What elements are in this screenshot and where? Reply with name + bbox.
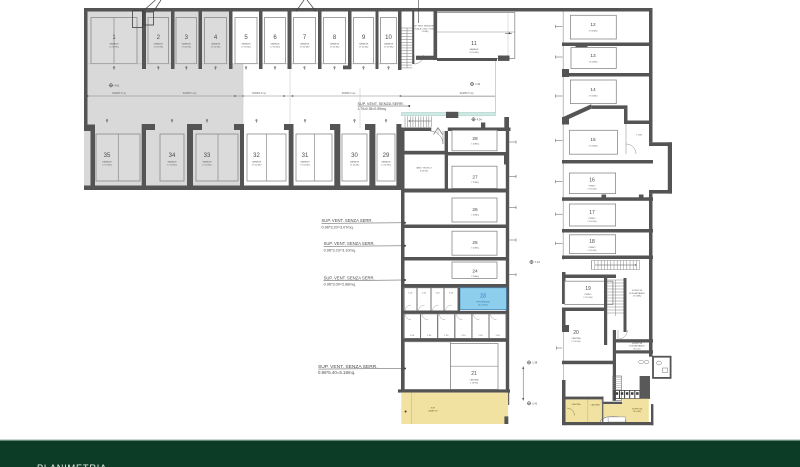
svg-text:17.50MQ: 17.50MQ [589,146,598,148]
svg-text:17.50 MQ: 17.50 MQ [181,47,191,49]
svg-text:1.41: 1.41 [532,402,538,406]
svg-text:33: 33 [204,153,211,159]
svg-text:26: 26 [472,207,478,213]
svg-text:72.50 MQ: 72.50 MQ [469,52,479,54]
svg-text:10: 10 [385,35,392,41]
svg-text:SUP. VENT. SENZA SERR.: SUP. VENT. SENZA SERR. [324,241,375,246]
svg-text:17.50MQ: 17.50MQ [589,96,598,98]
svg-text:GARAGE: GARAGE [102,161,112,164]
svg-text:RAMPA 5 mq: RAMPA 5 mq [342,92,356,95]
svg-text:12: 12 [590,22,596,28]
svg-text:17.50 MQ: 17.50 MQ [300,165,310,167]
svg-text:17.50 MQ: 17.50 MQ [202,165,212,167]
svg-text:13: 13 [590,53,596,59]
svg-text:GARAGE: GARAGE [350,161,360,164]
svg-text:19: 19 [585,286,591,292]
svg-text:0.96*3.20=3.07mq.: 0.96*3.20=3.07mq. [322,225,354,229]
svg-text:7.20MQ: 7.20MQ [471,144,479,146]
svg-text:NON ABITABILE: NON ABITABILE [629,345,645,348]
svg-text:7.20MQ: 7.20MQ [471,276,479,278]
svg-text:17.50 MQ: 17.50 MQ [102,165,112,167]
svg-text:CANTINA: CANTINA [590,404,600,407]
svg-text:RAMPA 5 mq: RAMPA 5 mq [460,92,474,95]
svg-text:0.96*3.23=3.10mq.: 0.96*3.23=3.10mq. [324,248,356,252]
svg-text:17.50 MQ: 17.50 MQ [167,165,177,167]
svg-text:17.50 MQ: 17.50 MQ [587,221,597,223]
svg-text:GARAGE: GARAGE [241,43,251,46]
svg-text:SUP. VENT. SENZA SERR.: SUP. VENT. SENZA SERR. [324,275,375,280]
svg-text:17.50MQ: 17.50MQ [589,62,598,64]
svg-text:17.50 MQ: 17.50 MQ [153,47,163,49]
svg-text:4.34: 4.34 [477,118,483,122]
svg-text:RAMPA 5 mq: RAMPA 5 mq [183,92,197,95]
svg-text:GARAGE: GARAGE [381,161,391,164]
svg-text:PRIMO: PRIMO [585,294,592,296]
svg-text:7.14: 7.14 [535,260,541,264]
svg-text:8.50 MQ: 8.50 MQ [420,171,428,173]
svg-text:1.70x0.35=0.59mq.: 1.70x0.35=0.59mq. [358,107,387,111]
svg-text:17.50 MQ: 17.50 MQ [359,47,369,49]
svg-text:PERTINENZA: PERTINENZA [476,301,490,304]
svg-text:17.50 MQ: 17.50 MQ [571,341,581,343]
svg-text:14: 14 [590,87,596,93]
svg-text:17.50 MQ: 17.50 MQ [330,47,340,49]
svg-text:35: 35 [104,153,111,159]
svg-text:17.50 MQ: 17.50 MQ [587,189,597,191]
svg-text:SUP. VENT. SENZA SERR.: SUP. VENT. SENZA SERR. [358,102,404,106]
svg-text:GARAGE: GARAGE [469,48,479,51]
svg-text:25: 25 [472,240,478,246]
svg-text:34: 34 [169,153,176,159]
svg-text:GARAGE: GARAGE [384,43,394,46]
svg-text:29: 29 [383,153,390,159]
svg-text:SUP. VENT. SENZA SERR.: SUP. VENT. SENZA SERR. [322,218,373,223]
svg-text:17.50MQ: 17.50MQ [633,296,642,298]
svg-text:PRIMO: PRIMO [589,186,596,188]
svg-text:27: 27 [472,175,478,181]
svg-text:17.50 MQ: 17.50 MQ [270,47,280,49]
svg-text:GARAGE: GARAGE [211,43,221,46]
svg-text:4.61: 4.61 [114,84,120,88]
svg-text:1.75M: 1.75M [636,135,642,137]
svg-text:17: 17 [589,210,595,216]
svg-text:17.50 MQ: 17.50 MQ [300,47,310,49]
svg-text:18: 18 [589,239,595,245]
svg-text:0.96*5.40=5.18mq.: 0.96*5.40=5.18mq. [318,370,355,375]
svg-text:LAVATOIO: LAVATOIO [428,409,438,412]
svg-text:CANTINA: CANTINA [571,403,581,406]
svg-text:17.50 MQ: 17.50 MQ [587,250,597,252]
svg-text:SOFFITTA: SOFFITTA [632,407,643,410]
svg-text:GARAGE: GARAGE [300,43,310,46]
svg-text:16: 16 [589,178,595,184]
svg-text:7.20MQ: 7.20MQ [471,182,479,184]
svg-text:1.10MQ: 1.10MQ [421,31,429,33]
svg-text:AL 23 MQ: AL 23 MQ [478,303,488,306]
svg-text:GARAGE: GARAGE [270,43,280,46]
svg-text:CANTINA: CANTINA [571,337,581,340]
svg-text:17.50 MQ: 17.50 MQ [381,165,391,167]
svg-text:28: 28 [472,136,478,142]
svg-text:17.50 MQ: 17.50 MQ [211,47,221,49]
svg-text:11: 11 [471,41,477,47]
svg-text:17.50MQ: 17.50MQ [589,31,598,33]
svg-text:7.20MQ: 7.20MQ [471,248,479,250]
svg-text:PRIMO: PRIMO [589,218,596,220]
svg-text:GARAGE: GARAGE [359,43,369,46]
svg-text:17.50 MQ: 17.50 MQ [384,47,394,49]
svg-text:PRIMO: PRIMO [589,247,596,249]
svg-text:SOFFITTA: SOFFITTA [632,289,643,292]
svg-text:17.50 MQ: 17.50 MQ [241,47,251,49]
svg-text:31: 31 [302,153,309,159]
svg-text:GARAGE: GARAGE [202,161,212,164]
svg-text:32: 32 [253,153,260,159]
svg-text:17.50 MQ: 17.50 MQ [350,165,360,167]
svg-text:21: 21 [471,371,477,377]
svg-text:30: 30 [351,153,358,159]
svg-text:GARAGE: GARAGE [300,161,310,164]
svg-text:GARAGE: GARAGE [252,161,262,164]
svg-text:23: 23 [480,294,486,300]
svg-text:H=1.50: H=1.50 [634,348,642,350]
svg-text:17.50 MQ: 17.50 MQ [583,297,593,299]
svg-text:7.20 MQ: 7.20 MQ [470,383,478,385]
svg-text:17.50 MQ: 17.50 MQ [109,47,119,49]
svg-text:1.38: 1.38 [532,361,538,365]
svg-text:CANTINA: CANTINA [469,379,479,382]
svg-text:RAMPA 5 mq: RAMPA 5 mq [252,92,266,95]
svg-text:GARAGE: GARAGE [154,43,164,46]
svg-text:SCALA COND. 3.30MQ: SCALA COND. 3.30MQ [414,27,436,30]
svg-text:7.20MQ: 7.20MQ [471,215,479,217]
svg-text:13.50MQ: 13.50MQ [633,411,642,413]
svg-text:GARAGE: GARAGE [109,43,119,46]
svg-text:GARAGE: GARAGE [330,43,340,46]
svg-text:20: 20 [573,330,579,336]
svg-text:1.31: 1.31 [475,82,481,86]
svg-text:15: 15 [590,137,596,143]
svg-text:GARAGE: GARAGE [182,43,192,46]
svg-text:17.50 MQ: 17.50 MQ [252,165,262,167]
svg-text:SUP.: SUP. [431,408,436,410]
svg-text:24: 24 [472,269,478,275]
svg-text:0.96*3.00=2.88mq.: 0.96*3.00=2.88mq. [324,283,356,287]
svg-text:PLANIMETRIA: PLANIMETRIA [37,463,107,467]
svg-text:GARAGE: GARAGE [167,161,177,164]
svg-text:NON ABITABILE: NON ABITABILE [629,292,645,295]
svg-text:VANO TECNICO: VANO TECNICO [416,167,432,170]
svg-text:RAMPA 5 mq: RAMPA 5 mq [112,92,126,95]
